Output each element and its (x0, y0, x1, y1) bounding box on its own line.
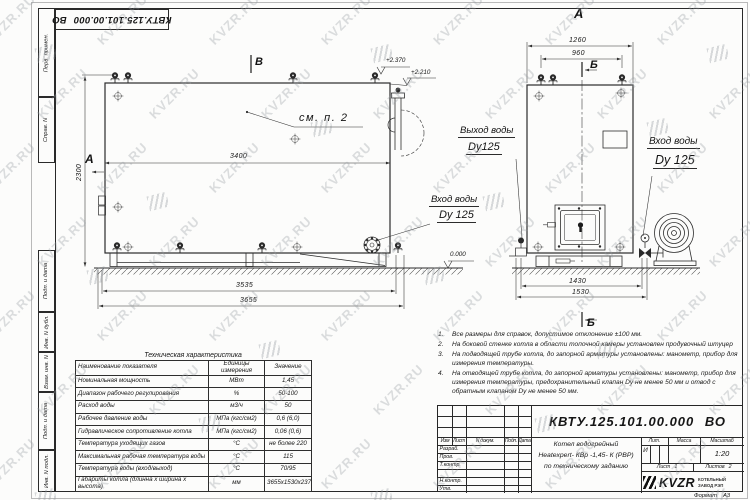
section-label-a-side: А (85, 152, 94, 166)
rev-col-izm: Изм (438, 438, 452, 445)
inlet-water-label-front: Вход воды (647, 136, 700, 149)
top-stamp: КВТУ.125.101.00.000 ВО (55, 9, 169, 30)
dim-1530-label: 1530 (572, 289, 589, 296)
dim-960-label: 960 (572, 50, 585, 57)
table-row: Диапазон рабочего регулирования%50-100 (76, 388, 312, 401)
side-view-drawing (82, 55, 474, 309)
table-row: Расход водым3/ч50 (76, 401, 312, 414)
rev-col-podp: Подп. (504, 438, 518, 445)
tech-characteristics: Техническая характеристика Наименование … (75, 352, 311, 492)
outlet-water-label: Выход воды (458, 125, 515, 138)
lit-label: Лит. (641, 438, 668, 444)
notes-list: 1.Все размеры для справок, допустимое от… (438, 331, 741, 398)
inlet-water-label-side: Вход воды (429, 194, 479, 207)
furnace-door (543, 205, 605, 250)
dim-1430-label: 1430 (569, 278, 586, 285)
inlet-flange (364, 237, 380, 253)
rev-row-utv: Утв. (440, 486, 452, 492)
front-outlet-fitting (509, 238, 527, 257)
view-label-v: В (255, 56, 263, 68)
note-item: 1.Все размеры для справок, допустимое от… (438, 331, 741, 340)
note-item: 4.На отводящей трубе котла, до запорной … (438, 370, 741, 396)
tech-table-header: Наименование показателя Единицы измерени… (76, 361, 312, 376)
top-stamp-doc-number: КВТУ.125.101.00.000 ВО (52, 14, 172, 25)
kvzr-logo-icon (643, 476, 656, 489)
doc-number: КВТУ.125.101.00.000 ВО (531, 407, 744, 436)
product-description: Котел водогрейный Heatexpert- КВр -1,45-… (533, 439, 639, 473)
lit-value: И (641, 447, 650, 454)
note-item: 3.На подводящей трубе котла, до запорной… (438, 351, 741, 368)
ground-hatching-front (512, 269, 700, 275)
sheets-total: Листов2 (693, 464, 744, 470)
support-skid (110, 253, 386, 267)
scale-label: Масштаб (700, 438, 744, 444)
dim-2300-label: 2300 (76, 164, 83, 181)
table-row: Температура уходящих газов°Сне более 220 (76, 438, 312, 451)
table-row: Габариты котла (длинна х ширина х высота… (76, 476, 312, 491)
note-item: 2.На боковой стенке котла в области топо… (438, 341, 741, 350)
blower-fan (654, 214, 696, 266)
inlet-water-dy-side: Dy 125 (437, 209, 476, 223)
rev-col-list: Лист (452, 438, 466, 445)
title-block: КВТУ.125.101.00.000 ВО Котел водогрейный… (437, 405, 743, 492)
table-row: Номинальная мощностьМВт1,45 (76, 375, 312, 388)
inlet-water-dy-front: Dy 125 (653, 153, 697, 169)
elevation-2210-label: +2.210 (411, 69, 430, 76)
scale-value: 1:20 (700, 449, 744, 458)
elevation-2370-label: +2.370 (386, 57, 405, 64)
format-note: Формат А3 (694, 493, 730, 499)
section-label-b-bottom: Б (587, 317, 595, 329)
outlet-water-dy: Dy125 (466, 141, 502, 155)
company-block: KVZR КОТЕЛЬНЫЙ ЗАВОД РЭП (643, 473, 743, 492)
outlet-fixture (388, 88, 424, 156)
dim-3655-label: 3655 (240, 297, 257, 304)
ground-hatching (94, 269, 463, 275)
front-skid (536, 256, 622, 267)
table-row: Температура воды (вход/выход)°С70/95 (76, 464, 312, 477)
table-row: Максимальная рабочая температура воды°С1… (76, 451, 312, 464)
rev-row-tkontr: Т.контр. (440, 462, 461, 468)
dim-3535-label: 3535 (236, 282, 253, 289)
table-row: Рабочее давление водыМПа (кгс/см2)0,6 (6… (76, 413, 312, 426)
tech-table-title: Техническая характеристика (75, 352, 311, 359)
rev-col-data: Дата (518, 438, 531, 445)
rev-col-ndocum: N докум. (466, 438, 504, 445)
elevation-zero-label: 0.000 (450, 251, 466, 258)
tech-table: Наименование показателя Единицы измерени… (75, 360, 312, 492)
front-view-drawing (509, 42, 700, 327)
view-label-a-front: А (574, 6, 583, 21)
table-row: Гидравлическое сопротивление котлаМПа (к… (76, 426, 312, 439)
rev-row-razrab: Разраб. (440, 446, 459, 452)
callout-see-item-2: см. п. 2 (299, 112, 348, 124)
sheet-number: Лист1 (641, 464, 693, 470)
dim-1260-label: 1260 (569, 37, 586, 44)
section-label-b-top: Б (590, 59, 598, 71)
rev-row-prov: Пров. (440, 454, 454, 460)
mass-label: Масса (668, 438, 700, 444)
drawing-sheet: Перв. примен. Справ. N Подп. и дата Инв.… (0, 0, 750, 500)
rev-row-nkontr: Н.контр. (440, 478, 462, 484)
dim-3400-label: 3400 (230, 153, 247, 160)
company-name: КОТЕЛЬНЫЙ ЗАВОД РЭП (698, 477, 726, 488)
kvzr-logo-text: KVZR (659, 476, 695, 490)
